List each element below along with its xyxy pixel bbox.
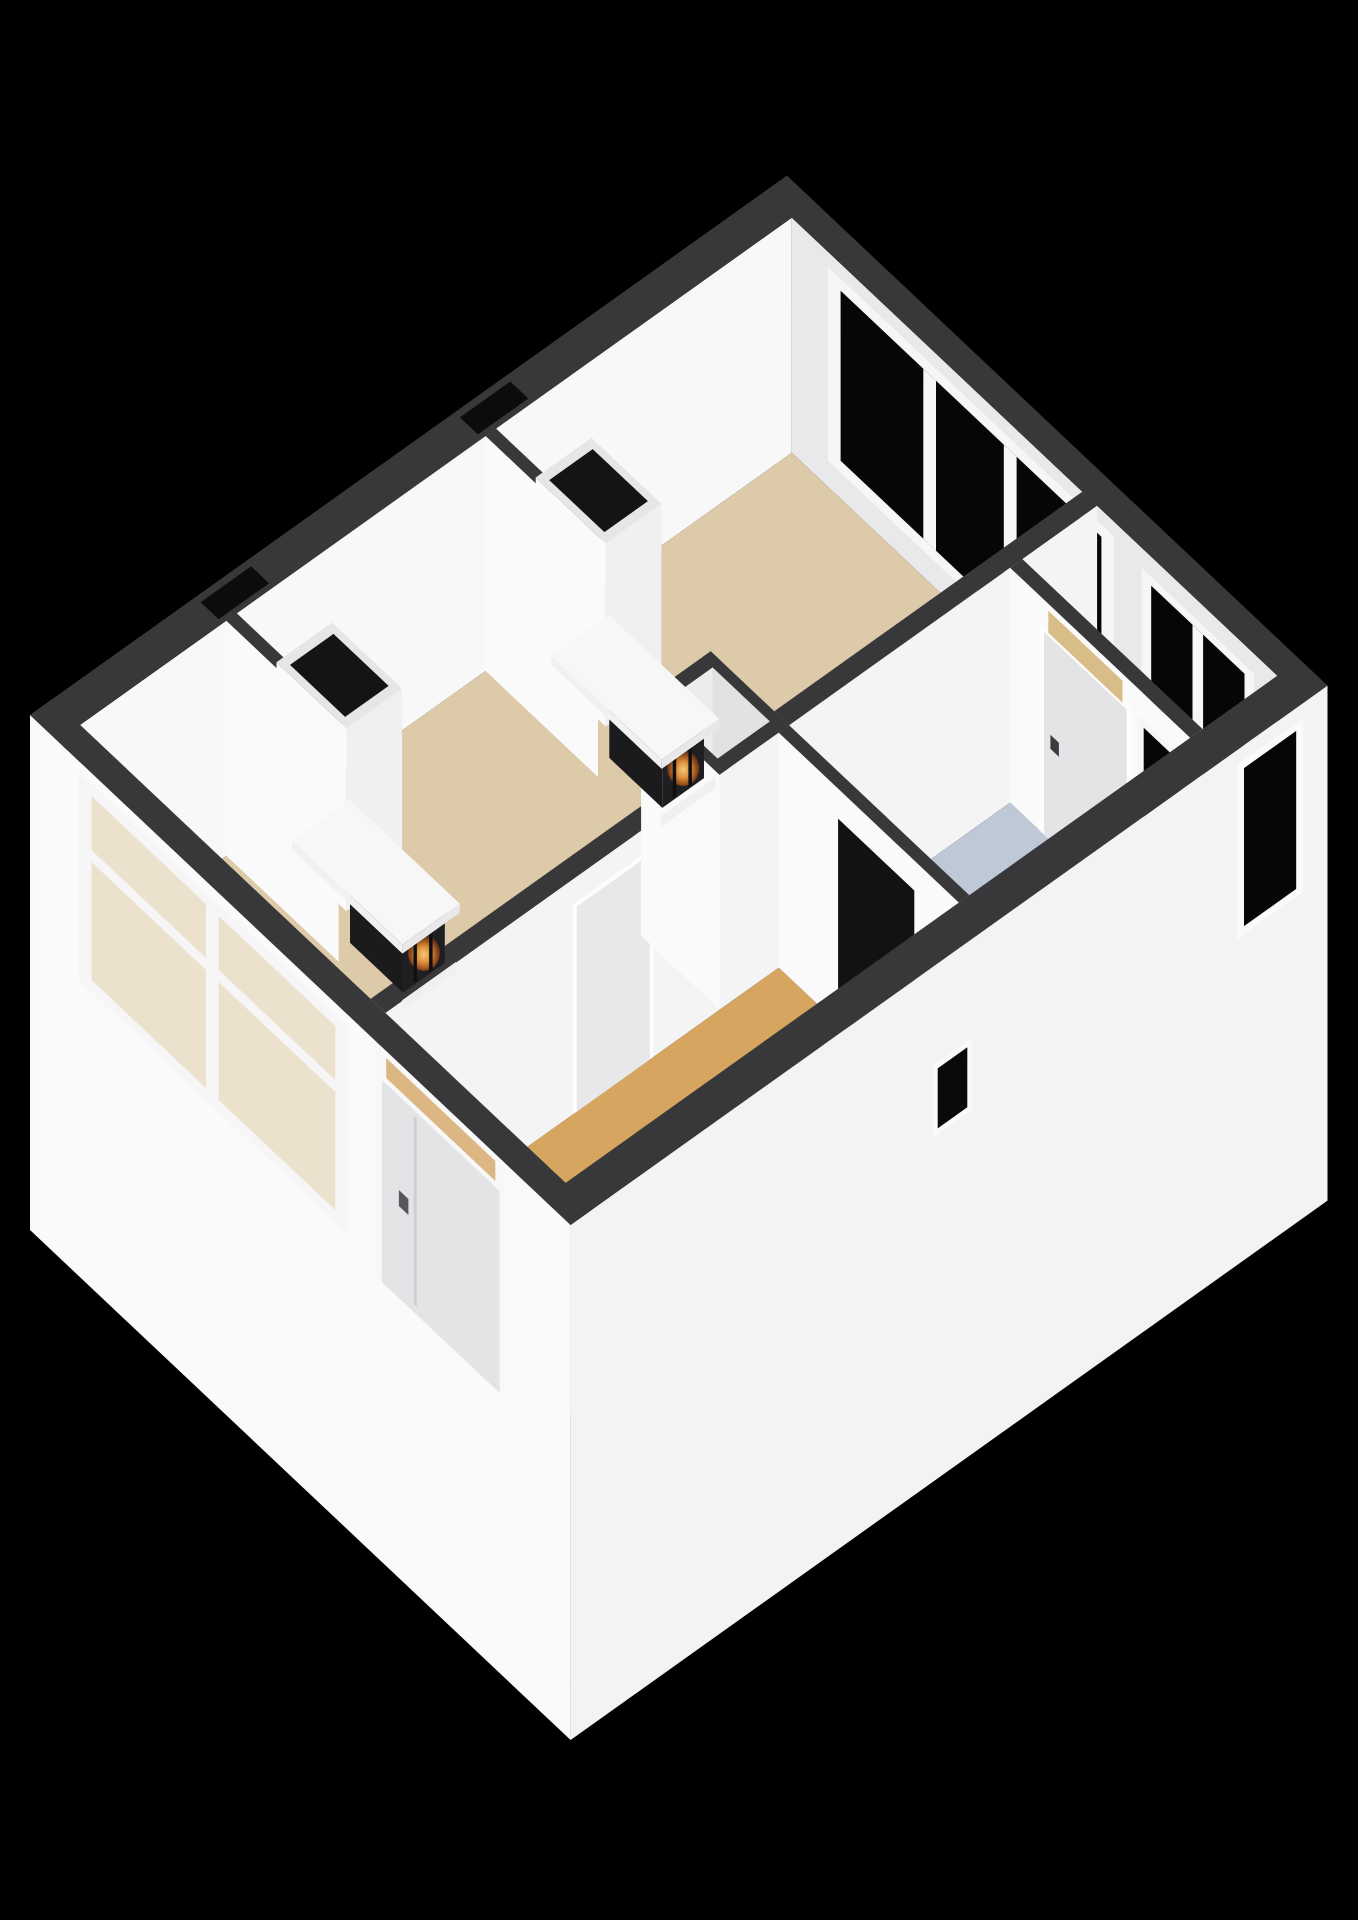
floorplan-3d-svg bbox=[0, 0, 1358, 1920]
floorplan-render bbox=[0, 0, 1358, 1920]
